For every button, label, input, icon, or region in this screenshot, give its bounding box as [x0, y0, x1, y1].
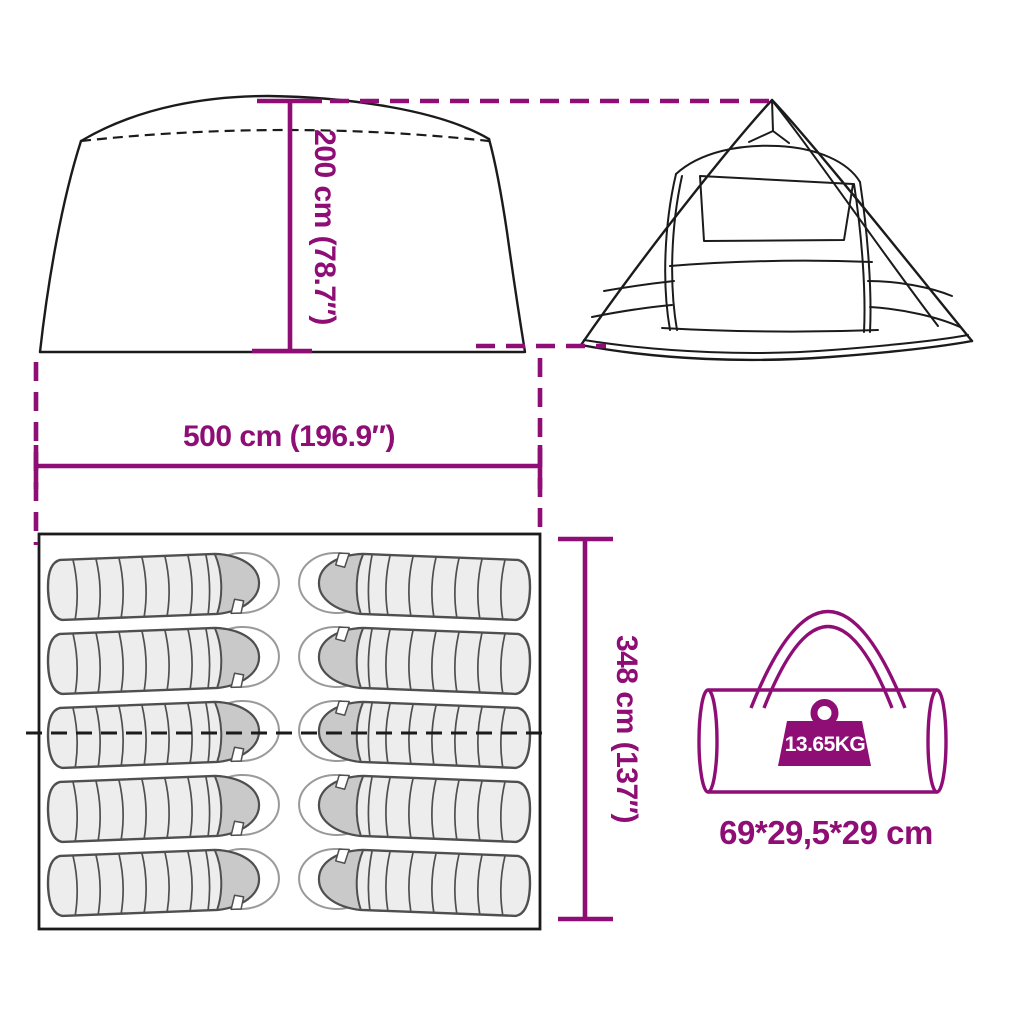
- sleeping-bag-icon: [298, 848, 531, 917]
- height-dimension-label: 200 cm (78.7″): [307, 129, 341, 325]
- bag-weight-label: 13.65KG: [785, 733, 866, 757]
- sleeping-bag-icon: [298, 774, 531, 843]
- product-dimension-diagram: 200 cm (78.7″) 500 cm (196.9″) 348 cm (1…: [0, 0, 1024, 1024]
- carry-bag-icon: [699, 612, 946, 793]
- diagram-scene: [0, 0, 1024, 1024]
- sleeping-bag-icon: [47, 626, 280, 695]
- sleeping-bag-icon: [298, 552, 531, 621]
- sleeping-bag-icon: [47, 848, 280, 917]
- width-dimension-label: 500 cm (196.9″): [183, 420, 395, 454]
- sleeping-bag-icon: [298, 626, 531, 695]
- tent-front-silhouette: [40, 96, 525, 352]
- tent-floorplan: [26, 534, 551, 929]
- tent-side-silhouette: [581, 100, 972, 360]
- sleeping-bag-icon: [47, 552, 280, 621]
- bag-size-label: 69*29,5*29 cm: [719, 814, 933, 852]
- depth-dimension-label: 348 cm (137″): [609, 635, 643, 823]
- sleeping-bag-icon: [47, 774, 280, 843]
